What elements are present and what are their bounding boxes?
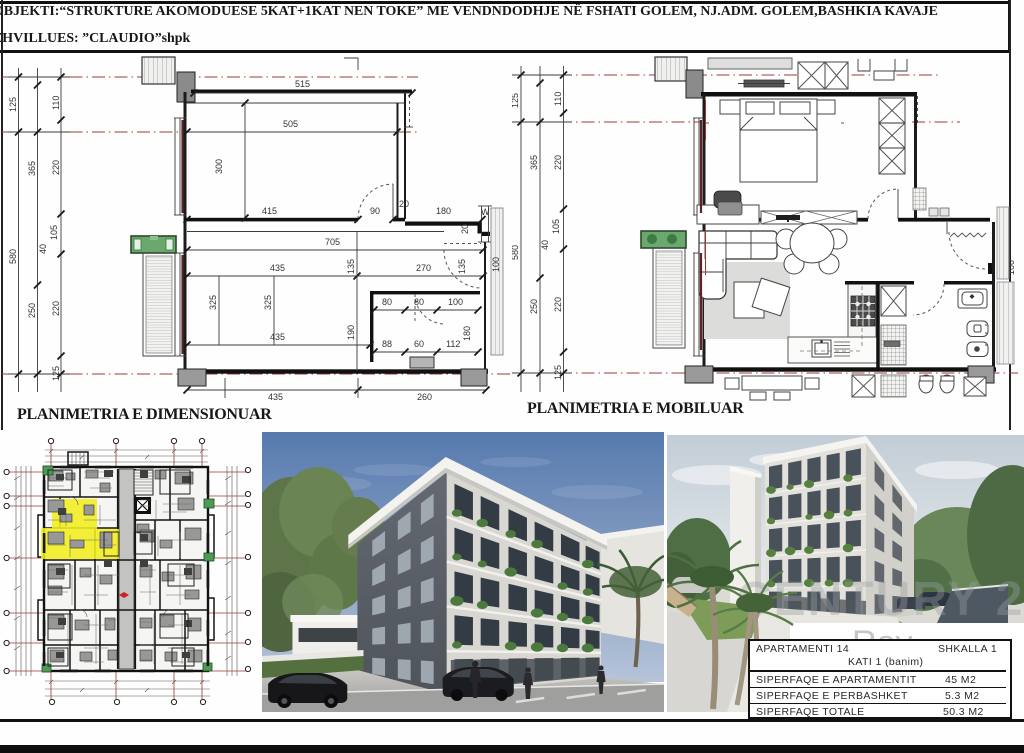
- svg-text:260: 260: [417, 392, 432, 402]
- svg-text:415: 415: [262, 206, 277, 216]
- svg-text:515: 515: [295, 79, 310, 89]
- svg-text:580: 580: [512, 245, 520, 260]
- svg-text:40: 40: [38, 244, 48, 254]
- svg-text:100: 100: [491, 257, 501, 272]
- svg-text:88: 88: [382, 339, 392, 349]
- svg-text:435: 435: [268, 392, 283, 402]
- svg-text:435: 435: [270, 332, 285, 342]
- svg-text:180: 180: [436, 206, 451, 216]
- svg-text:110: 110: [51, 96, 61, 110]
- svg-text:135: 135: [346, 259, 356, 274]
- svg-text:125: 125: [8, 97, 18, 112]
- svg-text:90: 90: [370, 206, 380, 216]
- svg-text:580: 580: [8, 249, 18, 264]
- svg-text:125: 125: [553, 365, 563, 380]
- svg-text:80: 80: [382, 297, 392, 307]
- svg-text:220: 220: [553, 297, 563, 312]
- svg-text:325: 325: [208, 295, 218, 310]
- svg-text:505: 505: [283, 119, 298, 129]
- svg-text:135: 135: [457, 259, 467, 274]
- svg-text:325: 325: [263, 295, 273, 310]
- svg-text:20: 20: [399, 199, 409, 209]
- svg-text:705: 705: [325, 237, 340, 247]
- svg-text:100: 100: [448, 297, 463, 307]
- svg-text:60: 60: [414, 339, 424, 349]
- svg-text:220: 220: [553, 155, 563, 170]
- svg-text:250: 250: [529, 299, 539, 314]
- svg-text:435: 435: [270, 263, 285, 273]
- svg-text:190: 190: [346, 325, 356, 340]
- svg-text:125: 125: [51, 366, 61, 381]
- svg-text:220: 220: [51, 160, 61, 175]
- svg-text:220: 220: [51, 301, 61, 316]
- svg-text:250: 250: [27, 303, 37, 318]
- svg-text:300: 300: [214, 159, 224, 174]
- svg-text:112: 112: [446, 339, 460, 349]
- svg-text:40: 40: [540, 240, 550, 250]
- svg-text:110: 110: [553, 92, 563, 106]
- svg-text:180: 180: [462, 326, 472, 341]
- svg-text:20: 20: [460, 224, 470, 234]
- svg-text:365: 365: [529, 155, 539, 170]
- svg-text:270: 270: [416, 263, 431, 273]
- svg-text:125: 125: [512, 93, 520, 108]
- svg-text:80: 80: [414, 297, 424, 307]
- svg-text:105: 105: [551, 219, 561, 234]
- svg-text:W: W: [481, 207, 490, 217]
- svg-text:105: 105: [49, 225, 59, 240]
- svg-text:365: 365: [27, 161, 37, 176]
